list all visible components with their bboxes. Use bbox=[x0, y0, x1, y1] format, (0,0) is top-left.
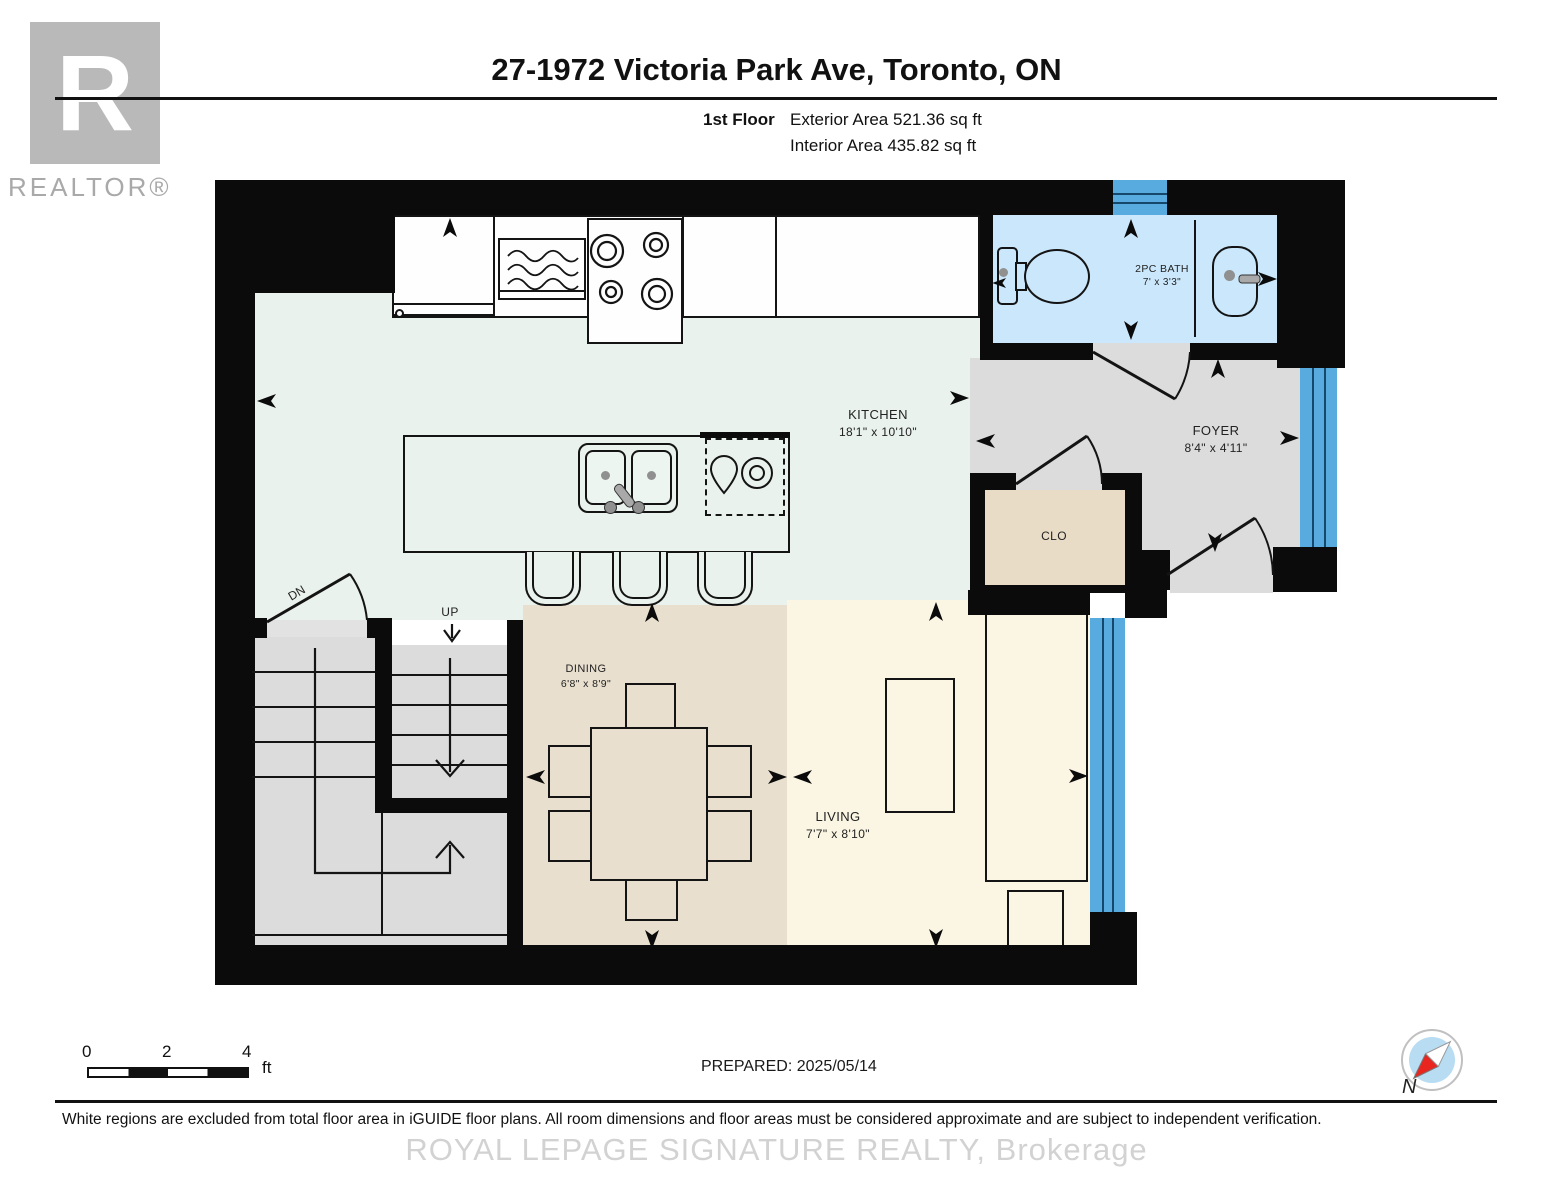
living-window bbox=[1090, 618, 1125, 912]
toilet-flush-dot bbox=[999, 268, 1008, 277]
realtor-logo: R bbox=[30, 22, 160, 164]
closet-label: CLO bbox=[1041, 528, 1067, 544]
scale-tick-2: 2 bbox=[162, 1042, 171, 1062]
compass-n-label: N bbox=[1402, 1076, 1416, 1099]
refrigerator-hinge-dot bbox=[395, 309, 404, 318]
scale-unit: ft bbox=[262, 1058, 271, 1078]
counter-divider bbox=[775, 217, 777, 316]
scale-bar bbox=[87, 1067, 249, 1078]
wall-mid-stair bbox=[375, 637, 392, 813]
bath-sink-drain bbox=[1224, 270, 1235, 281]
bar-stool bbox=[612, 552, 668, 606]
closet-door-opening bbox=[1016, 473, 1102, 490]
faucet-knob bbox=[632, 501, 645, 514]
stove-cooktop bbox=[587, 218, 683, 344]
stairs-up-label: UP bbox=[441, 604, 458, 620]
bath-divider-line bbox=[1194, 220, 1196, 337]
wall-bath-left bbox=[980, 215, 993, 360]
exterior-area: Exterior Area 521.36 sq ft bbox=[790, 110, 982, 130]
scale-tick-0: 0 bbox=[82, 1042, 91, 1062]
wall-right-top bbox=[1308, 180, 1345, 332]
bath-window bbox=[1113, 180, 1167, 215]
wall-stair-stub bbox=[367, 618, 392, 638]
title-divider bbox=[55, 97, 1497, 100]
brokerage-watermark: ROYAL LEPAGE SIGNATURE REALTY, Brokerage bbox=[405, 1132, 1147, 1168]
kitchen-label: KITCHEN 18'1" x 10'10" bbox=[839, 406, 917, 440]
dining-table bbox=[590, 727, 708, 881]
sink-drain-dot bbox=[601, 471, 610, 480]
wall-stair-stub bbox=[248, 618, 267, 638]
stairwell-down-floor bbox=[252, 637, 375, 950]
wall-bottom bbox=[215, 945, 1137, 985]
dining-chair bbox=[706, 745, 752, 798]
interior-area: Interior Area 435.82 sq ft bbox=[790, 136, 976, 156]
wall-sofa-top bbox=[968, 590, 1090, 615]
coffee-table bbox=[885, 678, 955, 813]
bar-stool bbox=[525, 552, 581, 606]
stairwell-up-floor bbox=[392, 645, 507, 798]
dining-chair bbox=[706, 810, 752, 862]
prepared-date: PREPARED: 2025/05/14 bbox=[701, 1058, 877, 1076]
entry-door-threshold bbox=[1170, 552, 1273, 593]
dining-chair bbox=[548, 745, 592, 798]
toilet-bowl bbox=[1024, 249, 1090, 304]
dining-label: DINING 6'8" x 8'9" bbox=[561, 662, 611, 691]
bath-sink bbox=[1212, 246, 1258, 317]
sink-drain-dot bbox=[647, 471, 656, 480]
refrigerator-handle-line bbox=[394, 303, 493, 305]
bath-label: 2PC BATH 7' x 3'3" bbox=[1135, 262, 1189, 290]
floor-plan-page: R REALTOR® 27-1972 Victoria Park Ave, To… bbox=[0, 0, 1553, 1200]
dining-chair bbox=[625, 879, 678, 921]
wall-left bbox=[215, 180, 255, 985]
wall-window-bottom-corner bbox=[1090, 912, 1137, 985]
floor-label: 1st Floor bbox=[703, 110, 775, 130]
scale-tick-4: 4 bbox=[242, 1042, 251, 1062]
realtor-logo-label: REALTOR® bbox=[8, 172, 172, 203]
dining-chair bbox=[548, 810, 592, 862]
dining-chair bbox=[625, 683, 676, 729]
living-label: LIVING 7'7" x 8'10" bbox=[806, 808, 870, 842]
camera-appliance-box bbox=[705, 438, 785, 516]
faucet-knob bbox=[604, 501, 617, 514]
disclaimer-text: White regions are excluded from total fl… bbox=[62, 1111, 1522, 1129]
wall-stairs-dining bbox=[507, 620, 523, 950]
foyer-label: FOYER 8'4" x 4'11" bbox=[1184, 422, 1247, 456]
page-title: 27-1972 Victoria Park Ave, Toronto, ON bbox=[0, 52, 1553, 88]
wall-below-entry-window bbox=[1273, 547, 1337, 592]
compass-needle-south bbox=[1426, 1035, 1457, 1066]
wall-stair-band bbox=[375, 798, 507, 813]
bar-stool bbox=[697, 552, 753, 606]
stair-landing-floor bbox=[375, 813, 507, 950]
refrigerator bbox=[392, 215, 495, 316]
wall-bath-bottom-left bbox=[980, 343, 1093, 360]
entry-sidelight-window bbox=[1300, 368, 1337, 547]
footer-divider bbox=[55, 1100, 1497, 1103]
bath-door-threshold bbox=[1093, 343, 1190, 360]
stair-door-threshold bbox=[267, 620, 367, 637]
microwave-tray-line bbox=[500, 290, 584, 292]
wall-right-step bbox=[1300, 332, 1345, 368]
sofa bbox=[985, 612, 1088, 882]
side-table bbox=[1007, 890, 1064, 947]
